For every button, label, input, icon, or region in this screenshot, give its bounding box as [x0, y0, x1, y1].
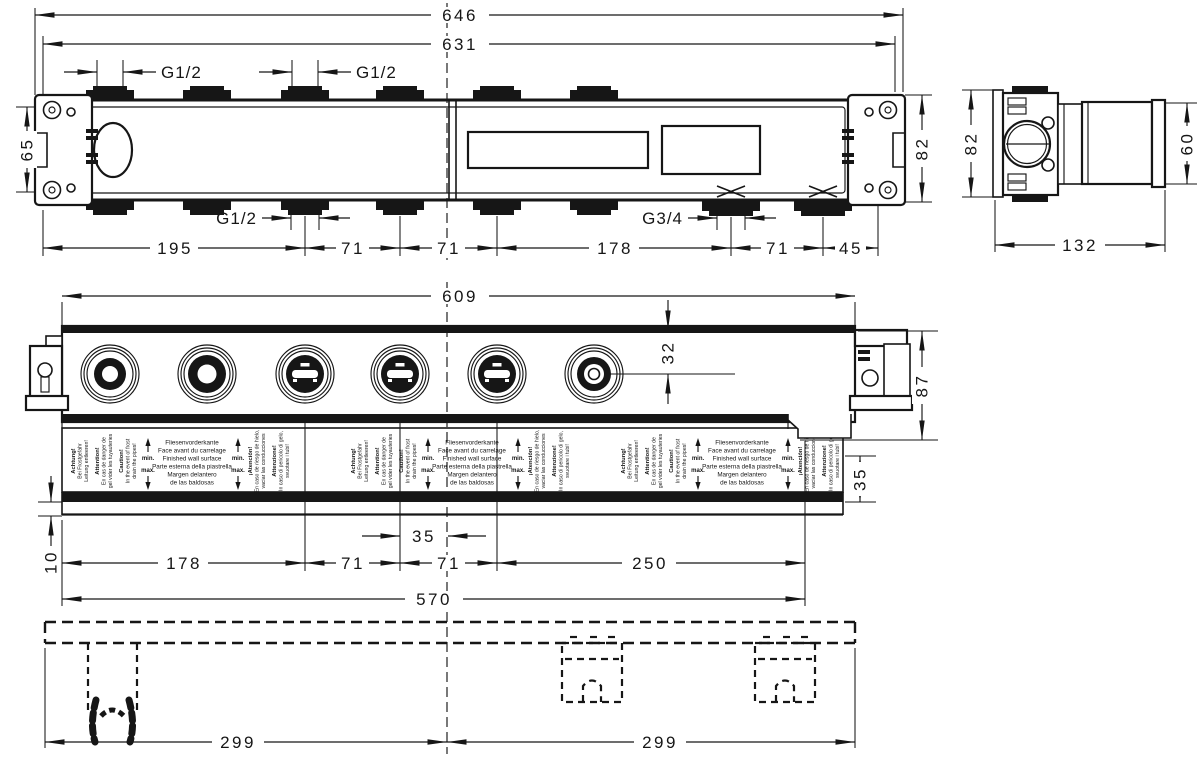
dim-35-center: 35	[362, 527, 486, 546]
outlet-lug-icon	[281, 200, 329, 215]
outlet-lug-icon	[473, 200, 521, 215]
svg-text:35: 35	[412, 527, 436, 546]
technical-drawing-page: Achtung! Bei Frostgefahr Leitung entleer…	[0, 0, 1200, 758]
dim-299-pair: 299 299	[45, 648, 855, 752]
front-bracket-left	[26, 336, 68, 410]
svg-text:71: 71	[437, 239, 461, 258]
svg-text:G3/4: G3/4	[642, 209, 683, 228]
warning-label	[71, 430, 291, 493]
svg-text:32: 32	[659, 341, 678, 365]
inlet-lug-icon	[183, 86, 231, 100]
svg-text:87: 87	[913, 374, 932, 398]
dim-35-tile: 35	[845, 456, 876, 502]
svg-text:178: 178	[597, 239, 633, 258]
svg-text:82: 82	[913, 137, 932, 161]
dimensional-drawing: Achtung! Bei Frostgefahr Leitung entleer…	[0, 0, 1200, 758]
thread-callout-g12-top-1: G1/2	[64, 60, 202, 88]
spindle-opening	[94, 123, 132, 177]
dim-570: 570	[62, 590, 805, 609]
svg-text:G1/2: G1/2	[356, 63, 397, 82]
mounting-bracket-left	[35, 95, 98, 205]
closed-port-x-icon	[717, 186, 837, 197]
svg-text:132: 132	[1062, 236, 1098, 255]
mounting-bracket-right	[842, 95, 905, 205]
svg-text:71: 71	[341, 554, 365, 573]
svg-text:178: 178	[166, 554, 202, 573]
dim-631: 631	[43, 35, 895, 54]
svg-text:G1/2: G1/2	[161, 63, 202, 82]
front-view	[26, 326, 912, 515]
g34-lug-icon	[794, 200, 852, 216]
inlet-lug-icon	[281, 86, 329, 100]
connector	[1058, 104, 1082, 184]
valve-body	[68, 100, 852, 200]
shutoff-valve-icon	[276, 345, 334, 403]
svg-text:609: 609	[442, 287, 478, 306]
protection-box	[1082, 102, 1152, 184]
svg-text:35: 35	[851, 467, 870, 491]
g34-lug-icon	[702, 200, 760, 216]
outlet-lug-icon	[376, 200, 424, 215]
svg-text:10: 10	[42, 550, 61, 574]
fixing-box-dashed	[562, 637, 622, 702]
dim-646: 646	[35, 6, 903, 25]
dim-82-side: 82	[961, 90, 993, 197]
dim-65: 65	[16, 107, 37, 192]
thread-callout-g12-top-2: G1/2	[259, 60, 397, 88]
port-icon	[81, 345, 139, 403]
svg-text:60: 60	[1178, 132, 1197, 156]
cover-plate	[1152, 100, 1165, 187]
shutoff-valve-icon	[371, 345, 429, 403]
svg-text:G1/2: G1/2	[216, 209, 257, 228]
svg-text:71: 71	[766, 239, 790, 258]
cartridge-window	[662, 126, 760, 174]
hanger-bracket-dashed	[88, 643, 137, 742]
dim-32: 32	[606, 300, 735, 404]
wall-plate	[993, 90, 1003, 197]
inlet-lug-icon	[376, 86, 424, 100]
side-view	[993, 86, 1165, 202]
dim-10-plate: 10	[38, 476, 62, 574]
svg-text:65: 65	[18, 138, 37, 162]
inlet-lug-icon	[570, 86, 618, 100]
dim-609: 609	[62, 287, 855, 306]
svg-text:195: 195	[157, 239, 193, 258]
top-view	[35, 86, 905, 216]
svg-text:631: 631	[442, 35, 478, 54]
svg-text:250: 250	[632, 554, 668, 573]
svg-text:45: 45	[839, 239, 863, 258]
shutoff-valve-icon	[468, 345, 526, 403]
front-bracket-right	[850, 330, 912, 410]
bottom-view	[45, 622, 855, 742]
svg-text:299: 299	[220, 733, 256, 752]
fixing-box-dashed	[755, 637, 815, 702]
svg-text:299: 299	[642, 733, 678, 752]
dim-60: 60	[1165, 103, 1197, 184]
svg-text:71: 71	[437, 554, 461, 573]
svg-text:646: 646	[442, 6, 478, 25]
body-step	[788, 414, 851, 438]
outlet-lug-icon	[570, 200, 618, 215]
dim-82-top: 82	[905, 95, 932, 202]
svg-text:570: 570	[416, 590, 452, 609]
inlet-lug-icon	[86, 86, 134, 100]
warning-label	[351, 430, 571, 493]
cartridge-window	[468, 132, 648, 168]
warning-label	[621, 430, 841, 493]
inlet-lug-icon	[473, 86, 521, 100]
svg-text:71: 71	[341, 239, 365, 258]
outlet-lug-icon	[86, 200, 134, 215]
svg-text:82: 82	[962, 132, 981, 156]
port-icon	[178, 345, 236, 403]
